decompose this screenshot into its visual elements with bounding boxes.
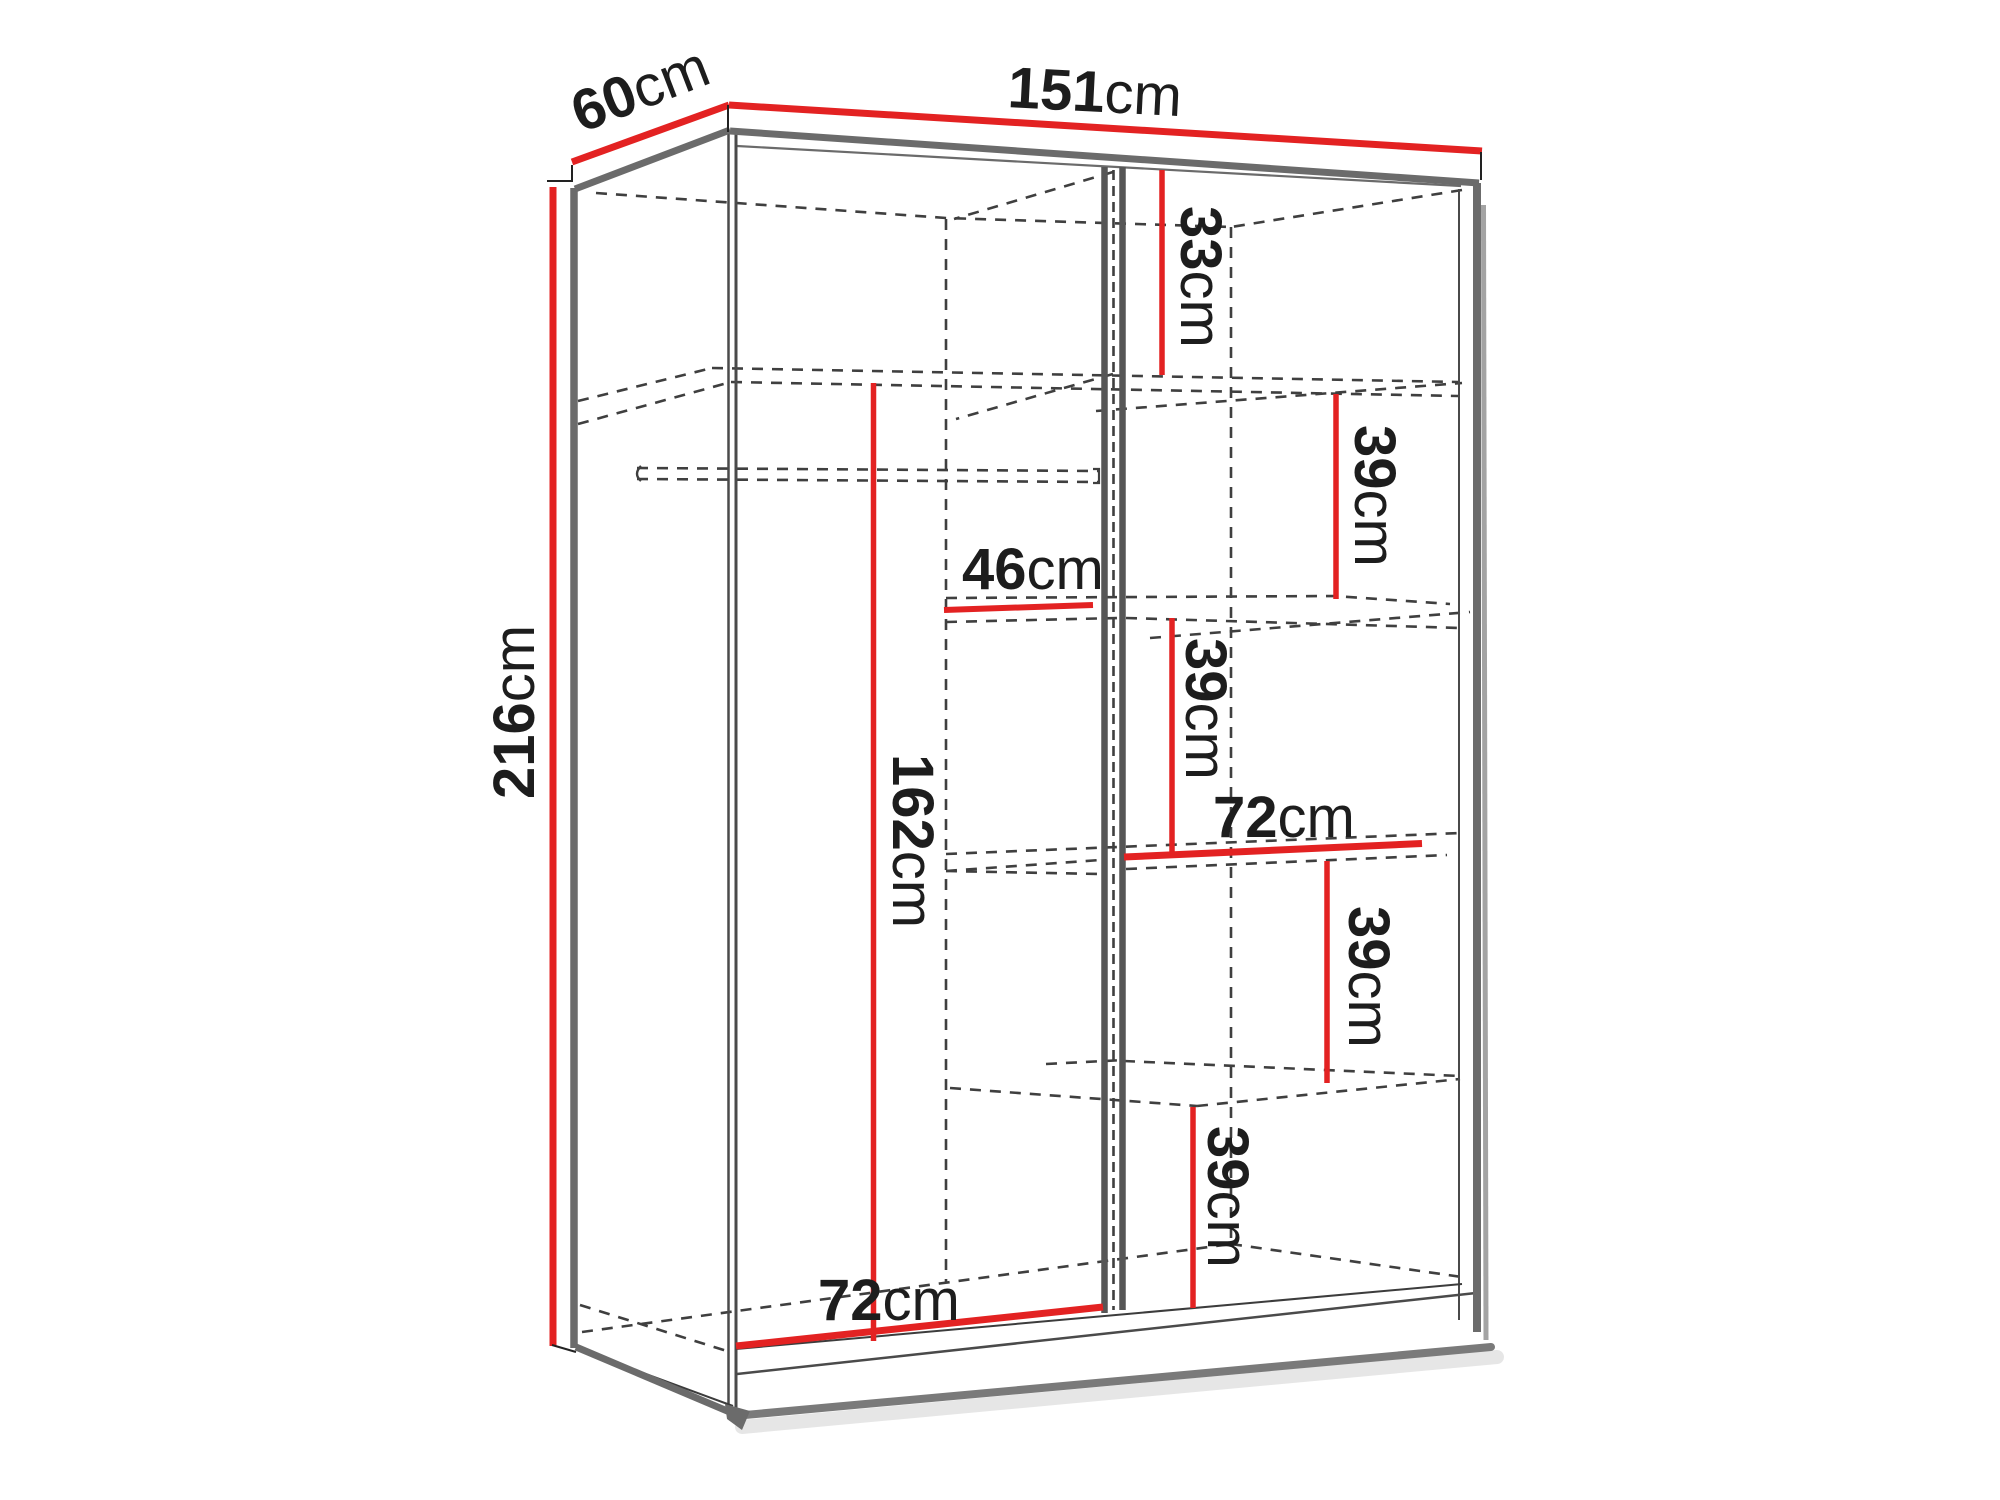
- svg-text:39cm: 39cm: [1173, 638, 1238, 780]
- svg-text:151cm: 151cm: [1006, 55, 1183, 129]
- svg-text:39cm: 39cm: [1342, 425, 1407, 567]
- svg-text:39cm: 39cm: [1195, 1126, 1260, 1268]
- svg-text:162cm: 162cm: [880, 754, 945, 928]
- svg-text:46cm: 46cm: [962, 537, 1104, 602]
- svg-text:39cm: 39cm: [1336, 906, 1401, 1048]
- svg-text:72cm: 72cm: [818, 1268, 960, 1333]
- svg-text:72cm: 72cm: [1213, 785, 1355, 850]
- svg-text:33cm: 33cm: [1168, 206, 1233, 348]
- svg-text:216cm: 216cm: [482, 625, 547, 799]
